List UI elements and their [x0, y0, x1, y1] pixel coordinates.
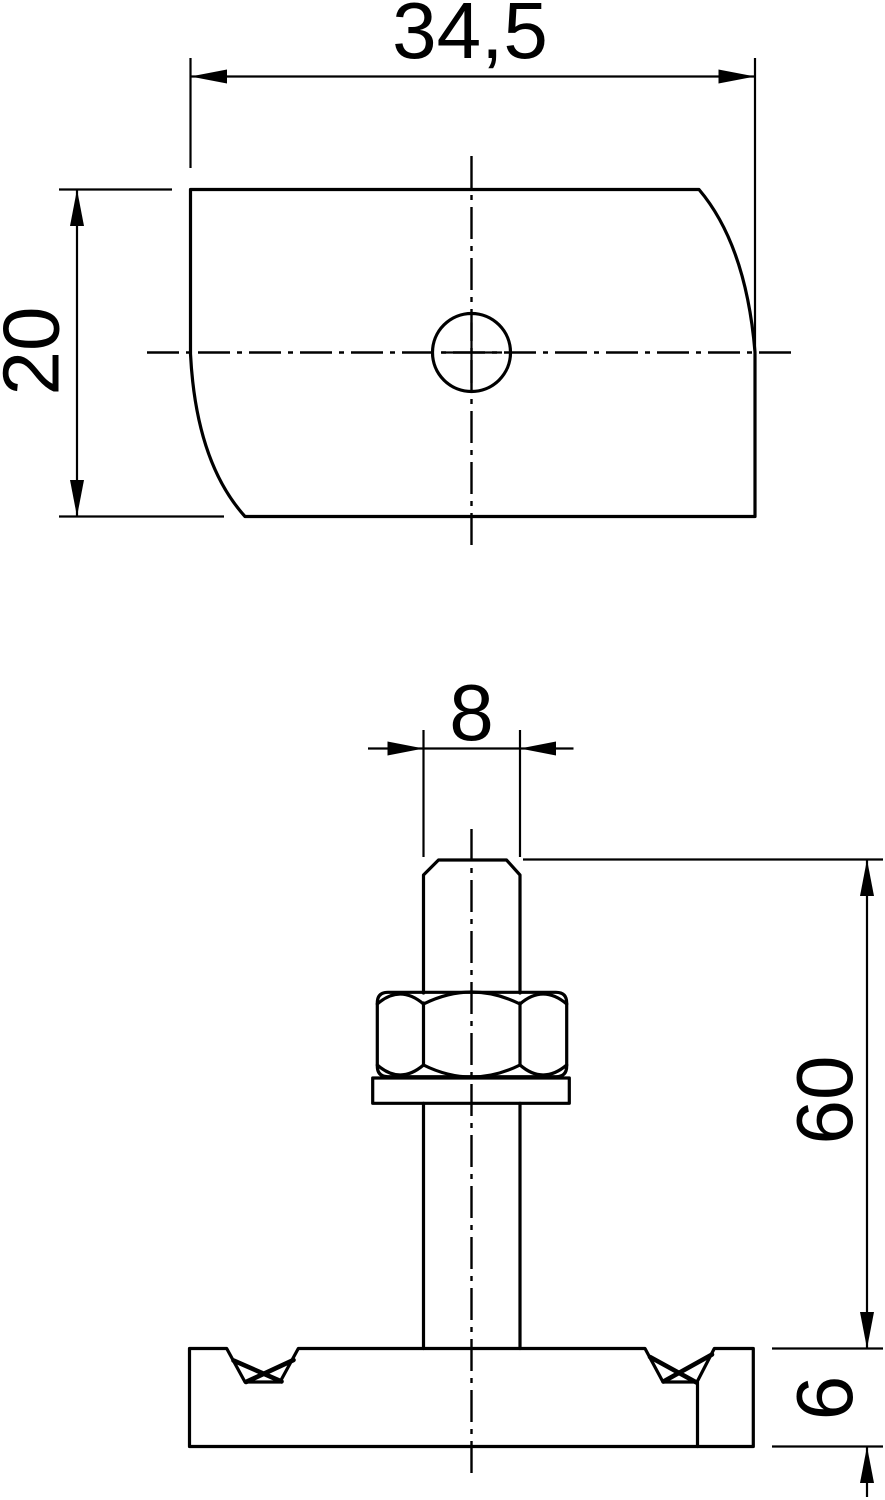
- arrowhead-top: [70, 190, 84, 227]
- arrowhead-left: [191, 70, 228, 84]
- stud-diameter-label: 8: [449, 668, 494, 757]
- side-view: 8 60 6: [190, 668, 884, 1497]
- arrowhead-right: [520, 742, 556, 756]
- technical-drawing-page: 34,5 20: [0, 0, 885, 1500]
- technical-drawing: 34,5 20: [0, 0, 885, 1500]
- stem-length-label: 60: [780, 1056, 869, 1145]
- dimension-stem-length: 60: [523, 860, 883, 1349]
- arrowhead-left: [388, 742, 424, 756]
- dimension-plate-width: 34,5: [191, 0, 756, 352]
- plate-width-label: 34,5: [392, 0, 548, 75]
- plate-thickness-label: 6: [780, 1376, 869, 1421]
- arrowhead-bottom: [70, 480, 84, 517]
- arrowhead-bottom: [860, 1447, 874, 1484]
- top-view: 34,5 20: [0, 0, 793, 546]
- dimension-plate-thickness: 6: [772, 1376, 883, 1497]
- arrowhead-bottom: [860, 1312, 874, 1349]
- arrowhead-top: [860, 860, 874, 897]
- dimension-stud-diameter: 8: [368, 668, 574, 857]
- plate-depth-label: 20: [0, 307, 76, 396]
- arrowhead-right: [719, 70, 756, 84]
